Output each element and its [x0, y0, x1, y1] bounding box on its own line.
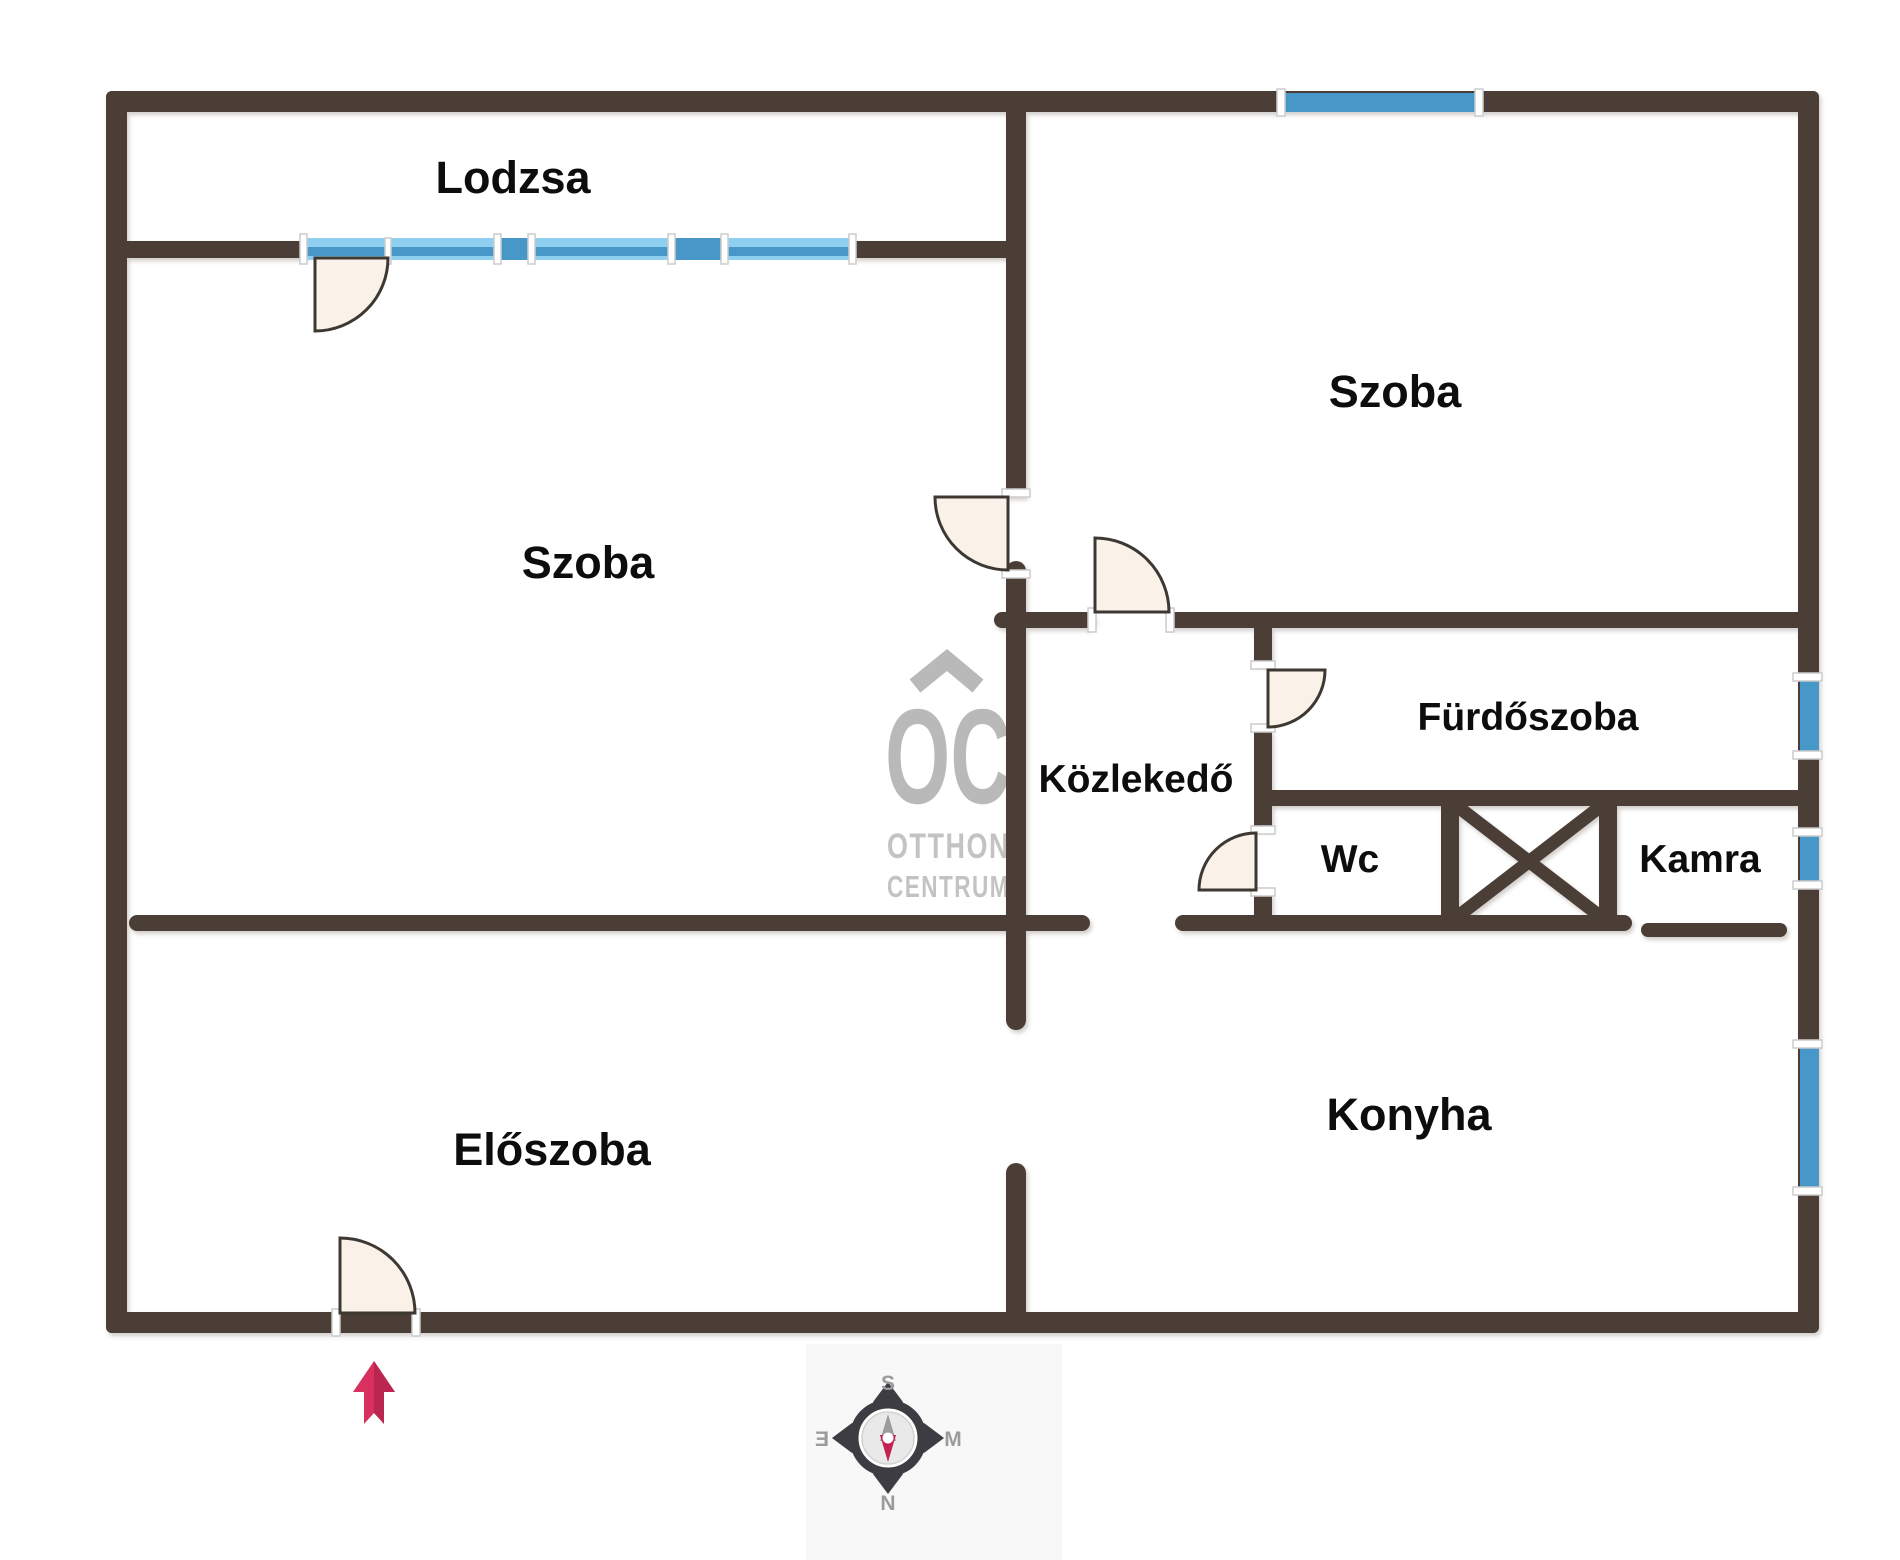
kamra-window-jamb-bottom	[1793, 881, 1822, 889]
konyha-window-jamb-top	[1793, 1040, 1822, 1048]
kamra-window-jamb-top	[1793, 828, 1822, 836]
label-kozlekedo: Közlekedő	[1038, 758, 1233, 801]
top-window-jamb-left	[1277, 89, 1285, 116]
konyha-window-jamb-bottom	[1793, 1187, 1822, 1195]
label-lodzsa: Lodzsa	[435, 152, 591, 203]
wall-left	[106, 91, 127, 1333]
label-wc: Wc	[1321, 838, 1380, 881]
label-kamra: Kamra	[1639, 838, 1761, 881]
furdo-window-jamb-bottom	[1793, 751, 1822, 759]
floor-plan-canvas: OC OTTHON CENTRUM	[0, 0, 1900, 1560]
compass-hub	[883, 1433, 894, 1444]
furdo-door-jamb-top	[1251, 661, 1275, 669]
watermark-line2: CENTRUM	[887, 869, 1010, 904]
watermark-logo-text: OC	[885, 681, 1011, 832]
wall-lodzsa-left	[122, 241, 306, 258]
compass-background	[806, 1344, 1062, 1560]
strip-divider-3	[528, 234, 535, 264]
label-szoba-left: Szoba	[522, 537, 655, 588]
compass-label-right: M	[944, 1428, 962, 1451]
wall-top	[106, 91, 1819, 112]
wall-lodzsa-right	[853, 241, 1009, 258]
label-furdoszoba: Fürdőszoba	[1418, 696, 1639, 739]
compass-label-top: S	[881, 1372, 895, 1395]
watermark-line1: OTTHON	[887, 827, 1010, 866]
lodzsa-casement-2	[673, 238, 724, 260]
strip-divider-5	[721, 234, 728, 264]
konyha-window	[1800, 1048, 1819, 1188]
szoba-top-window	[1284, 93, 1476, 112]
compass-label-left: Ǝ	[815, 1428, 829, 1451]
wall-furdo-wc-divider	[1254, 790, 1798, 806]
wall-kozlekedo-a	[1254, 612, 1272, 665]
furdo-window-jamb-top	[1793, 673, 1822, 681]
compass-label-bottom: N	[880, 1492, 895, 1515]
kamra-window	[1800, 835, 1819, 882]
wall-kozlekedo-b	[1254, 730, 1272, 830]
strip-divider-1	[300, 234, 307, 264]
compass-rose-icon: S N Ǝ M	[806, 1344, 1062, 1560]
strip-divider-2	[494, 234, 501, 264]
label-konyha: Konyha	[1326, 1089, 1492, 1140]
strip-divider-4	[668, 234, 675, 264]
wall-central-upper	[1006, 108, 1026, 497]
lodzsa-casement-1	[499, 238, 531, 260]
wall-bottom	[106, 1312, 1819, 1333]
furdoszoba-window	[1800, 680, 1819, 752]
label-eloszoba: Előszoba	[453, 1124, 652, 1175]
label-szoba-right: Szoba	[1329, 366, 1462, 417]
strip-divider-6	[849, 234, 856, 264]
top-window-jamb-right	[1475, 89, 1483, 116]
floor-plan-page: { "rooms": { "lodzsa": "Lodzsa", "szoba_…	[0, 0, 1900, 1560]
